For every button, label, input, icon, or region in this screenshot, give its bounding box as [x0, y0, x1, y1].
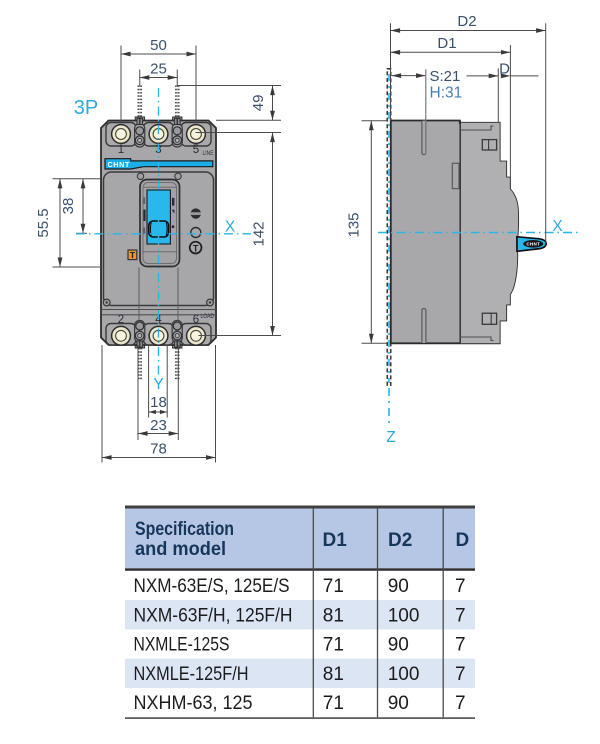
svg-text:3P: 3P	[74, 97, 98, 119]
svg-text:CHNT: CHNT	[526, 242, 540, 247]
svg-text:7: 7	[455, 693, 466, 714]
svg-text:T: T	[130, 250, 136, 260]
svg-text:18: 18	[150, 394, 167, 411]
svg-text:1: 1	[118, 144, 124, 156]
svg-text:7: 7	[455, 664, 466, 685]
svg-text:D1: D1	[437, 35, 456, 52]
svg-text:78: 78	[150, 441, 167, 458]
svg-text:NXMLE-125F/H: NXMLE-125F/H	[134, 664, 249, 685]
svg-text:7: 7	[455, 605, 466, 626]
svg-text:55.5: 55.5	[35, 208, 52, 237]
svg-text:81: 81	[323, 605, 344, 626]
svg-text:and model: and model	[135, 539, 226, 560]
svg-text:NXM-63E/S, 125E/S: NXM-63E/S, 125E/S	[134, 576, 290, 597]
svg-text:H:31: H:31	[430, 85, 463, 102]
svg-text:49: 49	[250, 95, 267, 112]
svg-text:X: X	[225, 219, 236, 236]
svg-text:38: 38	[60, 198, 77, 215]
svg-text:CHNT: CHNT	[108, 160, 130, 169]
svg-text:71: 71	[323, 576, 344, 597]
svg-text:90: 90	[388, 635, 409, 656]
svg-text:S:21: S:21	[430, 68, 461, 85]
svg-text:81: 81	[323, 664, 344, 685]
svg-text:NXM-63F/H, 125F/H: NXM-63F/H, 125F/H	[134, 605, 293, 626]
svg-text:142: 142	[251, 221, 268, 246]
svg-text:D2: D2	[457, 13, 476, 30]
svg-text:NXMLE-125S: NXMLE-125S	[134, 635, 230, 656]
svg-text:D2: D2	[388, 530, 412, 551]
svg-text:D1: D1	[323, 530, 348, 551]
svg-text:71: 71	[323, 693, 344, 714]
svg-text:D: D	[456, 530, 470, 551]
svg-text:71: 71	[323, 635, 344, 656]
svg-text:25: 25	[150, 61, 167, 78]
svg-text:135: 135	[346, 212, 363, 237]
svg-text:LOAD: LOAD	[201, 313, 215, 320]
svg-text:NXHM-63, 125: NXHM-63, 125	[134, 693, 253, 714]
svg-text:5: 5	[193, 144, 199, 156]
svg-text:23: 23	[150, 417, 167, 434]
svg-text:90: 90	[388, 576, 409, 597]
svg-text:100: 100	[388, 605, 420, 626]
svg-text:Y: Y	[153, 376, 163, 393]
svg-text:D: D	[499, 61, 510, 78]
svg-text:T: T	[193, 243, 199, 253]
svg-text:90: 90	[388, 693, 409, 714]
svg-text:Specification: Specification	[135, 519, 234, 540]
svg-text:100: 100	[388, 664, 420, 685]
svg-text:7: 7	[455, 576, 466, 597]
svg-text:X: X	[552, 218, 563, 235]
svg-text:50: 50	[150, 37, 167, 54]
svg-text:7: 7	[455, 635, 466, 656]
svg-text:Z: Z	[386, 429, 395, 446]
svg-text:LINE: LINE	[203, 150, 214, 157]
